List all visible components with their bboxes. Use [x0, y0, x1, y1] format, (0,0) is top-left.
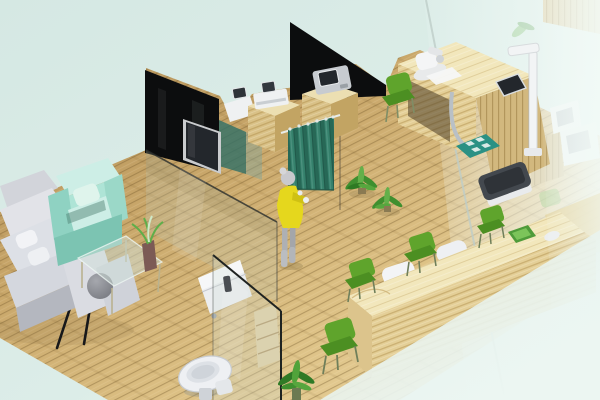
- figure-hand: [303, 197, 309, 203]
- figure-leg-left: [282, 226, 288, 254]
- clinic-render-stage: [0, 0, 600, 400]
- figure-hair-bun: [279, 167, 286, 174]
- figure-boot-left: [281, 250, 288, 267]
- clinic-render: [0, 0, 600, 400]
- figure-boot-right: [289, 247, 296, 263]
